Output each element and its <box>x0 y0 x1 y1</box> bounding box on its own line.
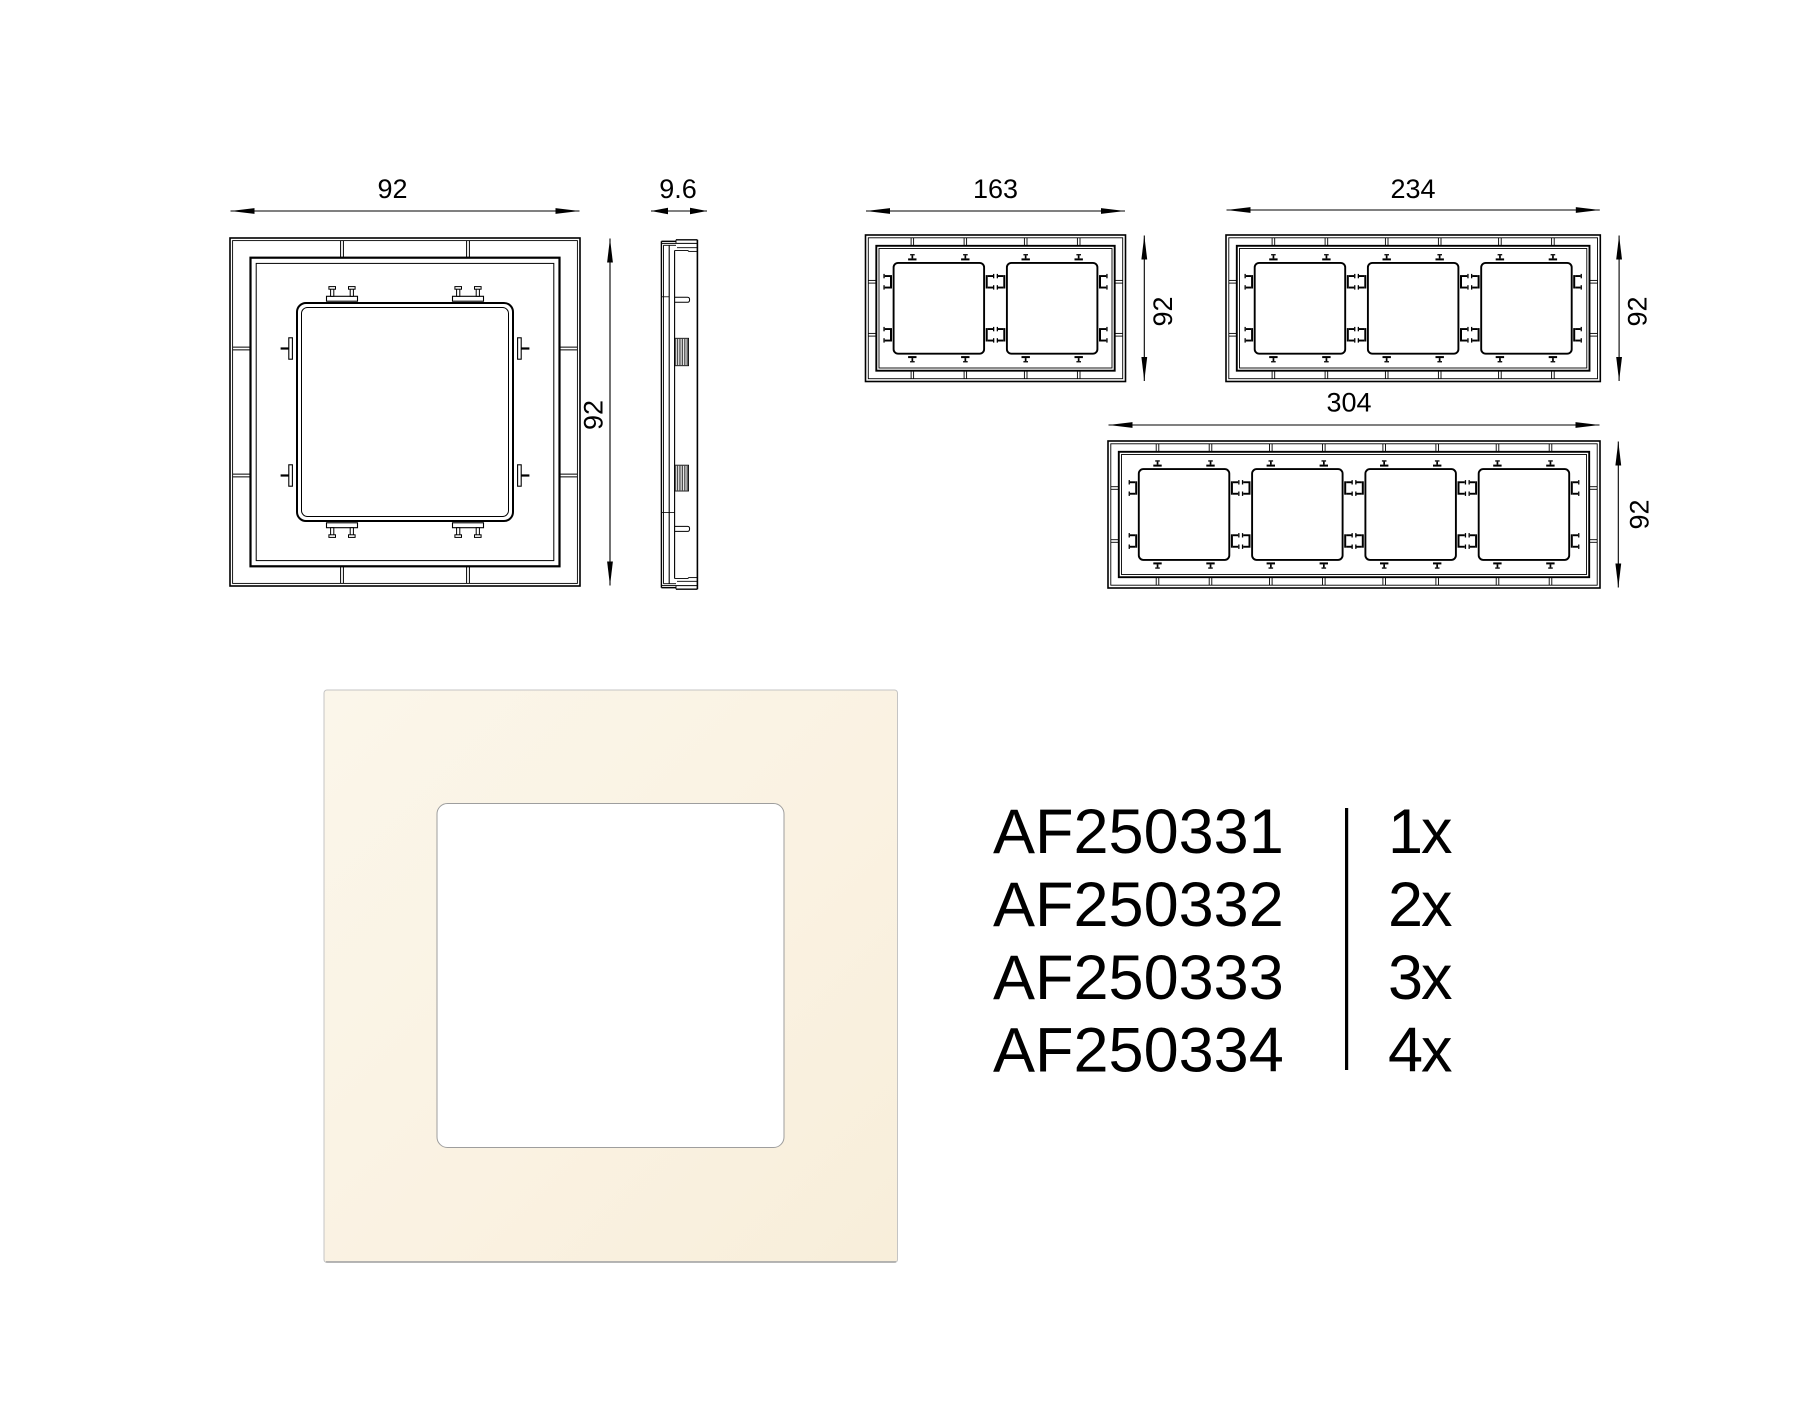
svg-text:AF250332: AF250332 <box>993 870 1284 940</box>
svg-text:92: 92 <box>579 400 609 430</box>
svg-text:9.6: 9.6 <box>659 174 697 204</box>
svg-text:92: 92 <box>1625 499 1655 529</box>
svg-text:2x: 2x <box>1388 870 1452 940</box>
svg-text:92: 92 <box>1623 296 1653 326</box>
svg-text:AF250333: AF250333 <box>993 943 1284 1013</box>
svg-text:1x: 1x <box>1388 797 1452 867</box>
svg-text:4x: 4x <box>1388 1016 1452 1086</box>
svg-text:304: 304 <box>1326 388 1371 418</box>
svg-text:AF250331: AF250331 <box>993 797 1284 867</box>
svg-text:163: 163 <box>973 174 1018 204</box>
svg-text:AF250334: AF250334 <box>993 1016 1284 1086</box>
svg-text:92: 92 <box>1148 296 1178 326</box>
svg-text:92: 92 <box>377 174 407 204</box>
svg-text:234: 234 <box>1390 174 1435 204</box>
svg-text:3x: 3x <box>1388 943 1452 1013</box>
